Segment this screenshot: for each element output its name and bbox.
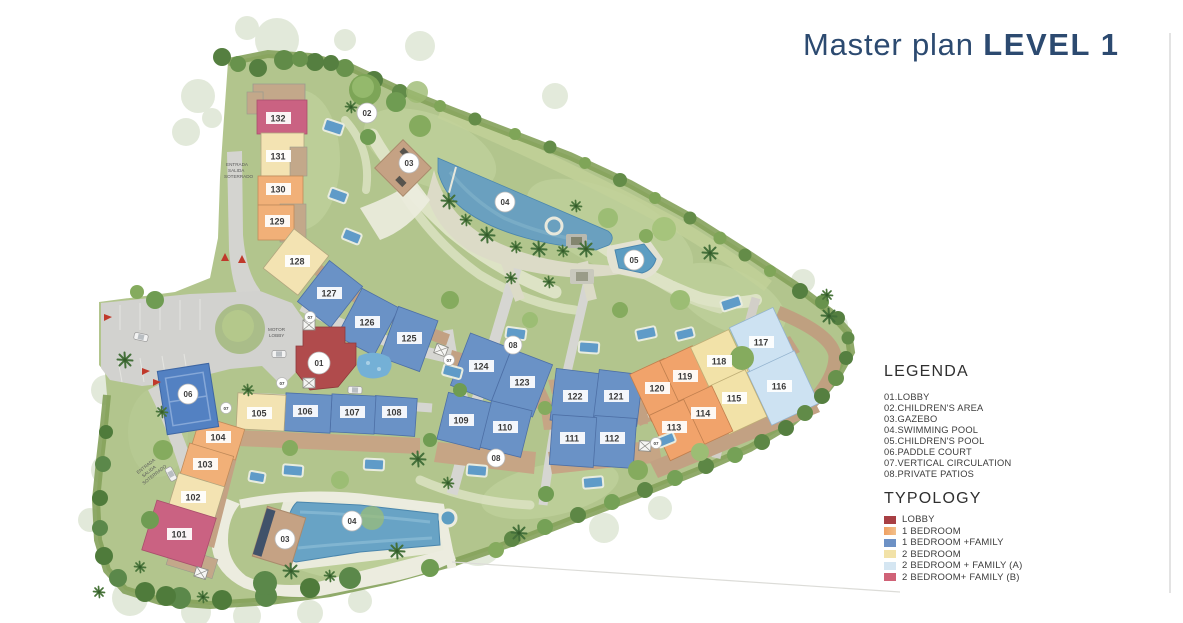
svg-text:07: 07 [307, 315, 313, 320]
svg-text:08: 08 [509, 341, 518, 350]
svg-text:132: 132 [270, 114, 285, 124]
svg-text:103: 103 [197, 460, 212, 470]
svg-text:120: 120 [649, 384, 664, 394]
svg-text:126: 126 [359, 318, 374, 328]
svg-text:123: 123 [514, 378, 529, 388]
svg-text:112: 112 [605, 434, 620, 444]
svg-text:04: 04 [348, 517, 357, 526]
svg-text:06: 06 [184, 390, 193, 399]
svg-text:101: 101 [171, 530, 186, 540]
svg-text:03: 03 [405, 159, 414, 168]
svg-text:131: 131 [270, 152, 285, 162]
svg-text:125: 125 [401, 334, 416, 344]
svg-text:124: 124 [473, 362, 488, 372]
svg-text:116: 116 [772, 382, 787, 392]
svg-text:111: 111 [565, 434, 579, 444]
svg-text:110: 110 [498, 423, 513, 433]
svg-text:118: 118 [712, 357, 727, 367]
svg-text:121: 121 [608, 392, 623, 402]
svg-text:07: 07 [446, 358, 452, 363]
svg-text:119: 119 [678, 372, 693, 382]
svg-text:02: 02 [363, 109, 372, 118]
svg-text:SOTERRADO: SOTERRADO [224, 174, 254, 179]
svg-text:106: 106 [297, 407, 312, 417]
svg-text:08: 08 [492, 454, 501, 463]
svg-text:115: 115 [727, 394, 742, 404]
svg-text:105: 105 [251, 409, 266, 419]
svg-text:122: 122 [567, 392, 582, 402]
svg-text:113: 113 [667, 423, 682, 433]
svg-text:117: 117 [754, 338, 769, 348]
svg-text:SALIDA: SALIDA [228, 168, 245, 173]
svg-text:129: 129 [269, 217, 284, 227]
svg-text:03: 03 [281, 535, 290, 544]
svg-text:114: 114 [696, 409, 711, 419]
svg-text:107: 107 [344, 408, 359, 418]
svg-text:108: 108 [386, 408, 401, 418]
svg-text:128: 128 [289, 257, 304, 267]
svg-text:127: 127 [321, 289, 336, 299]
svg-text:LOBBY: LOBBY [269, 333, 284, 338]
svg-text:07: 07 [653, 441, 659, 446]
svg-text:05: 05 [630, 256, 639, 265]
svg-text:04: 04 [501, 198, 510, 207]
svg-text:07: 07 [279, 381, 285, 386]
svg-text:01: 01 [315, 359, 324, 368]
svg-text:ENTRADA: ENTRADA [226, 162, 249, 167]
svg-text:07: 07 [223, 406, 229, 411]
svg-text:130: 130 [270, 185, 285, 195]
svg-text:104: 104 [210, 433, 225, 443]
svg-text:102: 102 [185, 493, 200, 503]
svg-text:MOTOR: MOTOR [268, 327, 286, 332]
svg-text:109: 109 [453, 416, 468, 426]
